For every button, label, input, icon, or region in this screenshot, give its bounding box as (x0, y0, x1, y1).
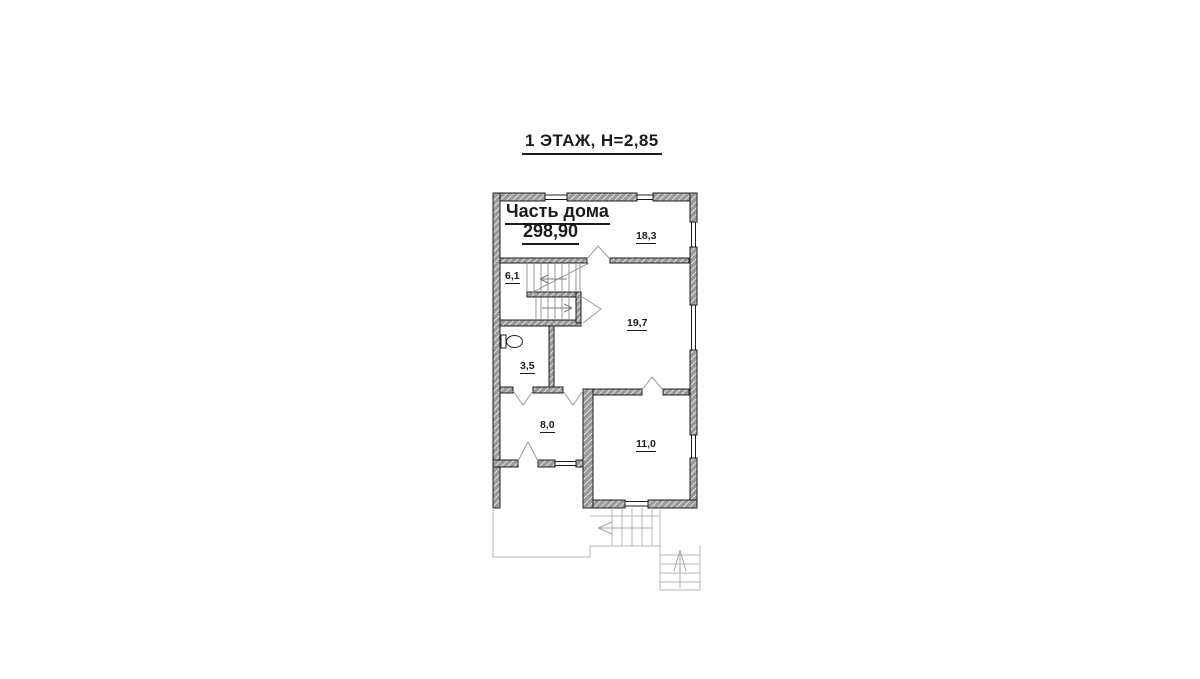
toilet-icon (501, 335, 523, 348)
terrace-outline (493, 508, 590, 557)
room-area-8-0: 8,0 (540, 419, 555, 433)
interior-walls (500, 258, 689, 395)
exterior-steps (590, 508, 700, 590)
room-area-19-7: 19,7 (627, 317, 647, 331)
room-area-6-1: 6,1 (505, 270, 520, 284)
floor-plan-drawing (0, 0, 1200, 679)
room-area-18-3: 18,3 (636, 230, 656, 244)
floor-plan-page: 1 ЭТАЖ, Н=2,85 Часть дома 298,90 18,3 6,… (0, 0, 1200, 679)
room-area-11-0: 11,0 (636, 438, 656, 452)
house-part-area: 298,90 (522, 221, 579, 245)
room-area-3-5: 3,5 (520, 360, 535, 374)
page-title: 1 ЭТАЖ, Н=2,85 (522, 131, 662, 155)
